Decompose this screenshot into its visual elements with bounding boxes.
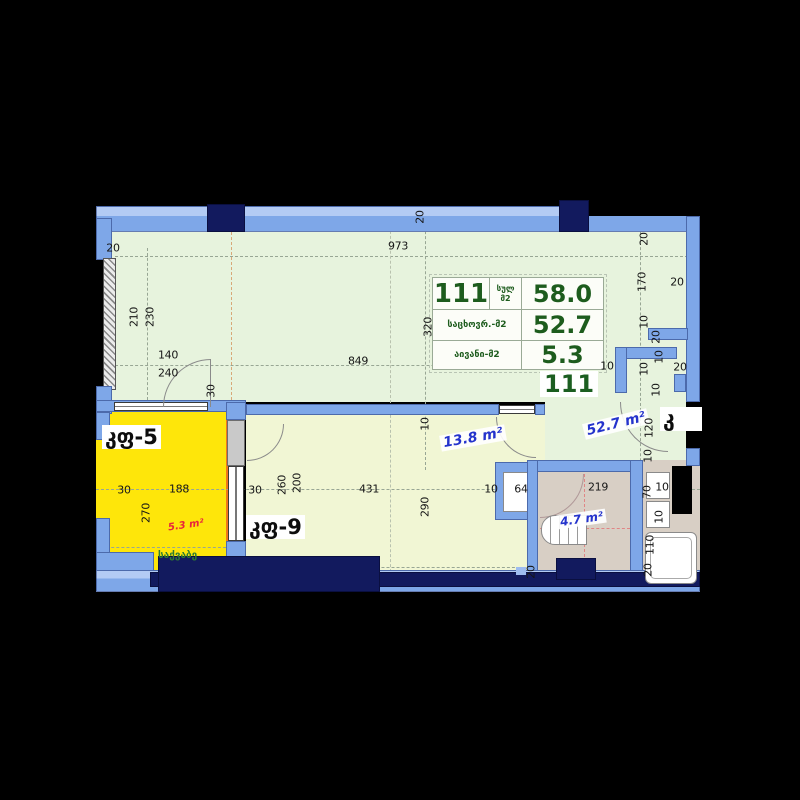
dimension-label: 20 — [650, 330, 663, 343]
total-label: სულ — [497, 284, 515, 293]
door-leaf — [210, 359, 211, 407]
living-area-value: 52.7 — [522, 310, 603, 340]
dimension-label: 20 — [670, 276, 683, 289]
dimension-label: 260 — [276, 475, 289, 495]
table-row: საცხოვრ.-მ2 52.7 — [433, 310, 603, 341]
vent-shaft — [672, 466, 692, 514]
total-area-value: 58.0 — [522, 278, 603, 309]
wall-inner — [535, 404, 545, 415]
column — [207, 204, 245, 232]
unit-info-table: 111 სულ მ2 58.0 საცხოვრ.-მ2 52.7 აივანი-… — [432, 277, 604, 370]
door-block — [227, 420, 245, 466]
door-threshold — [499, 405, 535, 414]
dimension-label: 10 — [650, 383, 663, 396]
dimension-label: 240 — [158, 367, 178, 380]
dimension-label: 10 — [638, 315, 651, 328]
dimension-label: 70 — [641, 485, 654, 498]
wall-jut — [674, 374, 686, 392]
dimension-label: 431 — [359, 483, 379, 496]
dimension-label: 64 — [514, 483, 527, 496]
total-area-header: სულ მ2 — [490, 278, 522, 309]
dimension-label: 10 — [419, 417, 432, 430]
dimension-label: 10 — [653, 350, 666, 363]
dimension-label: 20 — [642, 563, 655, 576]
dim-line — [115, 256, 688, 257]
dimension-label: 140 — [158, 349, 178, 362]
dimension-label: 10 — [653, 510, 666, 523]
unit-label: მ2 — [500, 294, 510, 303]
dimension-label: 270 — [140, 503, 153, 523]
hatched-wall — [103, 258, 116, 390]
dimension-label: 10 — [600, 360, 613, 373]
column — [158, 556, 380, 592]
column — [556, 558, 596, 580]
dimension-label: 20 — [414, 210, 427, 223]
dimension-label: 20 — [673, 361, 686, 374]
dimension-label: 10 — [638, 362, 651, 375]
wall-jut — [615, 347, 627, 393]
unit-number: 111 — [433, 278, 490, 309]
dimension-label: 170 — [636, 272, 649, 292]
dimension-label: 230 — [144, 307, 157, 327]
dimension-label: 10 — [484, 483, 497, 496]
wall-bathroom-top — [527, 460, 643, 472]
wall-inner — [246, 404, 499, 415]
window — [228, 466, 244, 541]
dimension-label: 30 — [205, 384, 218, 397]
column — [559, 200, 589, 232]
wall-right — [686, 448, 700, 466]
balcony-area-label: აივანი-მ2 — [433, 341, 522, 369]
living-area-label: საცხოვრ.-მ2 — [433, 310, 522, 340]
dim-line — [96, 547, 226, 548]
dim-line — [390, 206, 391, 592]
door-window-label-9: კფ-9 — [246, 515, 305, 539]
wall-right — [686, 216, 700, 402]
dimension-label: 30 — [117, 484, 130, 497]
balcony-area-value: 5.3 — [522, 341, 603, 369]
table-row: აივანი-მ2 5.3 — [433, 341, 603, 369]
dimension-label: 10 — [655, 481, 668, 494]
floor-plan-canvas: 111 სულ მ2 58.0 საცხოვრ.-მ2 52.7 აივანი-… — [0, 0, 800, 800]
dimension-label: 10 — [642, 449, 655, 462]
table-row: 111 სულ მ2 58.0 — [433, 278, 603, 310]
door-window-label-5: კფ-5 — [102, 425, 161, 449]
dimension-label: 210 — [128, 307, 141, 327]
dimension-label: 30 — [248, 484, 261, 497]
dimension-label: 20 — [638, 232, 651, 245]
dimension-label: 320 — [422, 317, 435, 337]
dimension-label: 120 — [643, 418, 656, 438]
dimension-label: 20 — [106, 242, 119, 255]
boiler-room-label: საქვაბე — [158, 550, 197, 561]
unit-number-tag: 111 — [540, 371, 598, 397]
wall-partition — [226, 402, 246, 420]
dimension-label: 110 — [644, 535, 657, 555]
dimension-label: 20 — [525, 565, 538, 578]
dimension-label: 849 — [348, 355, 368, 368]
cutout — [589, 200, 700, 216]
dimension-label: 200 — [291, 473, 304, 493]
dimension-label: 290 — [419, 497, 432, 517]
door-window-label-cut: კ — [660, 407, 702, 431]
dimension-label: 973 — [388, 240, 408, 253]
dimension-label: 219 — [588, 481, 608, 494]
dimension-label: 188 — [169, 483, 189, 496]
